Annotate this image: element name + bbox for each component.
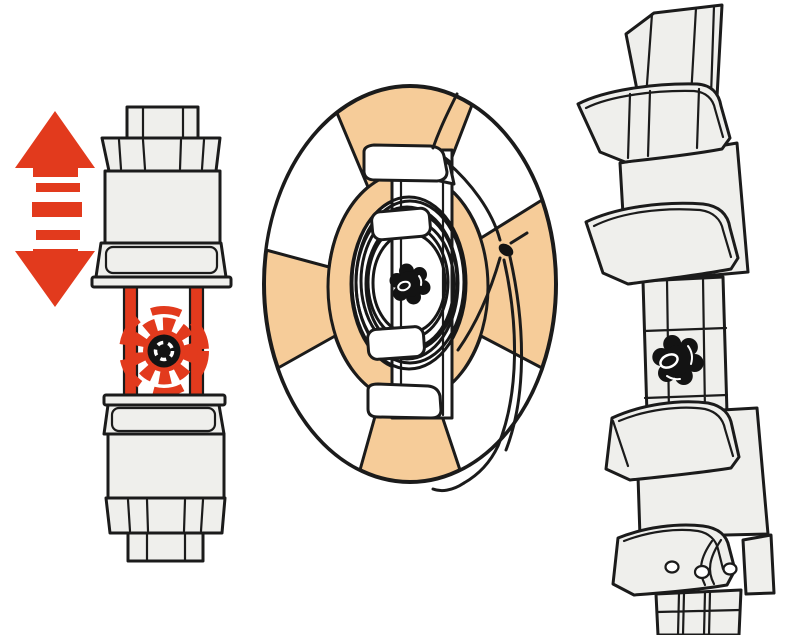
- arrow-down-head: [15, 249, 95, 307]
- mounting-hole-2: [695, 566, 709, 578]
- left-bracket-upper-body: [105, 171, 220, 243]
- up-down-arrow-icon: [15, 111, 95, 307]
- clamp-tab-upper: [371, 208, 431, 241]
- left-bracket-top-cap: [127, 107, 198, 138]
- mounting-hole-1: [666, 562, 679, 573]
- arrow-up-head: [15, 111, 95, 177]
- clamp-tab-lower: [367, 326, 425, 360]
- left-bracket-upper-bar: [92, 277, 231, 287]
- right-back-plate: [743, 535, 774, 594]
- left-bracket-bottom-cap: [128, 533, 203, 561]
- arrow-dash-3: [36, 230, 80, 240]
- right-bracket: [578, 5, 774, 635]
- arrow-dash-1: [36, 183, 80, 192]
- left-bracket-lower-body: [108, 434, 224, 498]
- illustration-canvas: [0, 0, 800, 635]
- right-tray-4: [613, 525, 735, 595]
- rope-bottom-exit: [433, 483, 464, 491]
- mounting-hole-3: [724, 564, 737, 575]
- left-bracket-bottom-collar: [106, 498, 225, 533]
- right-tray-3: [606, 402, 739, 480]
- arrow-dash-2: [32, 202, 82, 217]
- knob-hub: [148, 335, 181, 368]
- life-ring-icon: [264, 86, 556, 491]
- hook-tab-top: [364, 145, 447, 181]
- illustration-stage: [0, 0, 800, 635]
- hook-tab-bottom: [368, 384, 441, 418]
- left-bracket-lower-flange: [104, 405, 224, 434]
- left-bracket: [92, 107, 231, 561]
